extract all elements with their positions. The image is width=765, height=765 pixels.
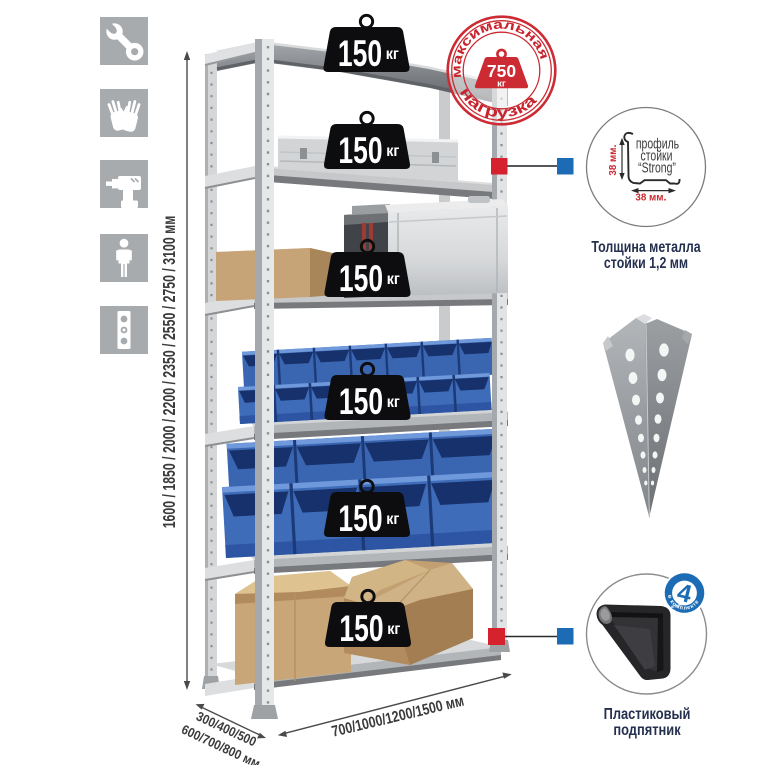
- svg-text:38 мм.: 38 мм.: [607, 144, 619, 175]
- svg-text:подпятник: подпятник: [613, 722, 681, 739]
- svg-text:1600 / 1850 / 2000 / 2200 / 23: 1600 / 1850 / 2000 / 2200 / 2350 / 2550 …: [160, 216, 180, 529]
- svg-text:38 мм.: 38 мм.: [635, 192, 666, 204]
- svg-text:“Strong”: “Strong”: [638, 160, 676, 176]
- svg-text:Пластиковый: Пластиковый: [604, 706, 691, 723]
- svg-text:стойки 1,2 мм: стойки 1,2 мм: [604, 254, 688, 272]
- svg-text:кг: кг: [497, 79, 506, 90]
